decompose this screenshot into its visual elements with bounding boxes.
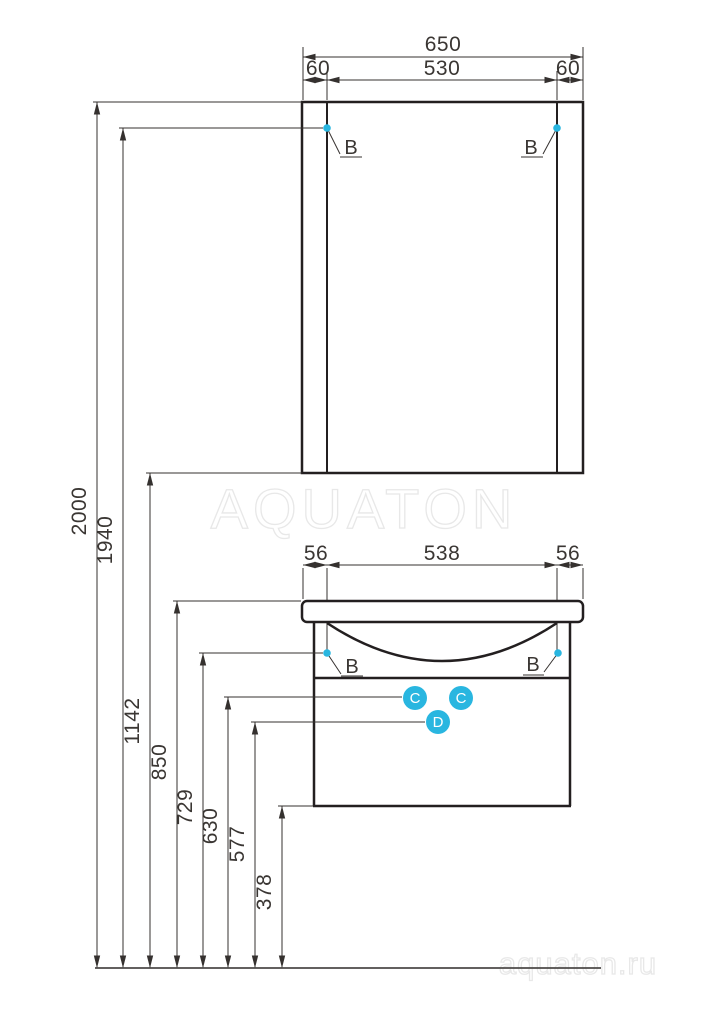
dim-label-mirror-center: 530 (424, 57, 461, 80)
dimension-drawing: AQUATON aquaton.ru 650 60 530 60 B B (0, 0, 723, 1024)
dim-label-1142: 1142 (121, 697, 144, 744)
callout-B-vanity-right: B (526, 654, 539, 676)
brand-watermark: AQUATON (211, 477, 518, 540)
dim-label-729: 729 (174, 789, 197, 826)
hinge-point-marker (553, 124, 561, 132)
technical-drawing-canvas: AQUATON aquaton.ru 650 60 530 60 B B (0, 0, 723, 1024)
dim-label-1940: 1940 (94, 516, 117, 565)
callout-letter-c1: C (410, 690, 421, 707)
width-dimensions-mirror: 650 60 530 60 (303, 33, 583, 100)
dim-label-vanity-right: 56 (556, 542, 580, 565)
dim-label-mirror-left-panel: 60 (306, 57, 330, 80)
dim-label-630: 630 (199, 808, 222, 845)
hinge-point-marker (323, 124, 331, 132)
website-watermark: aquaton.ru (499, 946, 657, 981)
callout-letter-c2: C (456, 690, 467, 707)
hinge-point-marker (554, 649, 562, 657)
circle-callouts: C C D (403, 686, 473, 734)
dim-label-2000: 2000 (68, 487, 91, 536)
vanity-callouts: B B (323, 649, 562, 678)
dim-label-577: 577 (226, 826, 249, 863)
dim-label-vanity-center: 538 (424, 542, 461, 565)
dim-label-vanity-left: 56 (304, 542, 328, 565)
vanity-front-view (302, 601, 583, 806)
washbasin-top (302, 601, 583, 622)
dim-label-mirror-right-panel: 60 (556, 57, 580, 80)
dim-label-378: 378 (253, 874, 276, 911)
callout-B-mirror-left: B (344, 137, 357, 159)
callout-letter-d: D (433, 714, 444, 731)
dim-label-mirror-total-width: 650 (425, 33, 462, 56)
hinge-point-marker (323, 649, 331, 657)
callout-B-vanity-left: B (345, 656, 358, 678)
dim-label-850: 850 (148, 744, 171, 781)
basin-curve (327, 623, 557, 661)
callout-B-mirror-right: B (524, 137, 537, 159)
